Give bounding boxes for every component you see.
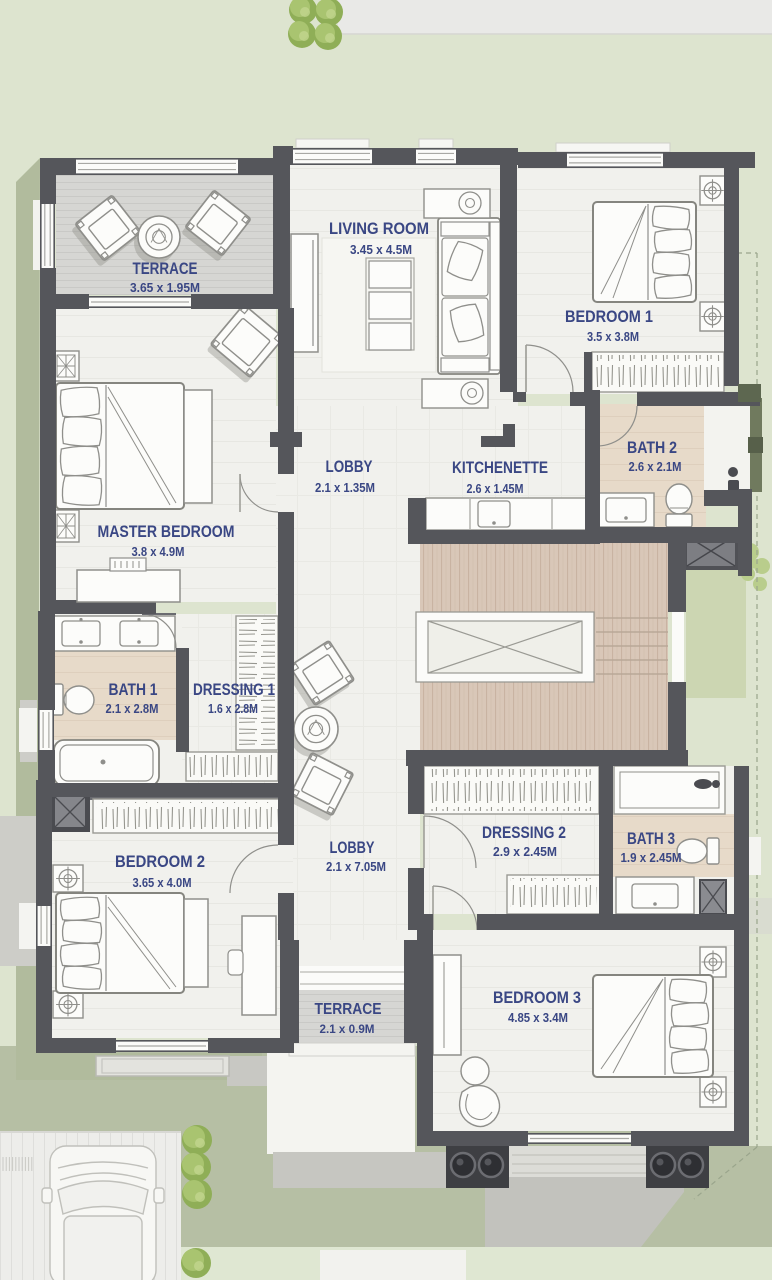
svg-text:BATH 3: BATH 3 — [627, 829, 675, 848]
svg-text:MASTER BEDROOM: MASTER BEDROOM — [98, 522, 235, 541]
svg-text:3.65 x 1.95M: 3.65 x 1.95M — [130, 281, 200, 295]
svg-text:2.1 x 0.9M: 2.1 x 0.9M — [320, 1022, 375, 1036]
svg-text:TERRACE: TERRACE — [133, 259, 198, 278]
svg-text:1.9 x 2.45M: 1.9 x 2.45M — [621, 851, 682, 865]
svg-text:2.1 x 7.05M: 2.1 x 7.05M — [326, 860, 386, 874]
svg-text:3.45 x 4.5M: 3.45 x 4.5M — [350, 243, 412, 257]
svg-text:1.6 x 2.8M: 1.6 x 2.8M — [208, 702, 258, 716]
svg-text:2.9 x 2.45M: 2.9 x 2.45M — [493, 845, 557, 859]
svg-text:BATH 2: BATH 2 — [627, 438, 677, 457]
svg-text:LOBBY: LOBBY — [326, 457, 374, 476]
svg-text:3.5 x 3.8M: 3.5 x 3.8M — [587, 330, 639, 344]
svg-text:BEDROOM 1: BEDROOM 1 — [565, 307, 653, 326]
svg-text:BEDROOM 3: BEDROOM 3 — [493, 988, 581, 1007]
svg-text:TERRACE: TERRACE — [315, 1001, 382, 1018]
svg-text:2.1 x 2.8M: 2.1 x 2.8M — [106, 702, 159, 716]
svg-text:DRESSING 2: DRESSING 2 — [482, 823, 566, 842]
svg-text:LIVING ROOM: LIVING ROOM — [329, 219, 429, 238]
svg-text:DRESSING 1: DRESSING 1 — [193, 680, 275, 699]
svg-text:2.1 x 1.35M: 2.1 x 1.35M — [315, 481, 375, 495]
svg-text:BATH 1: BATH 1 — [109, 680, 158, 699]
svg-text:BEDROOM 2: BEDROOM 2 — [115, 852, 205, 871]
svg-text:2.6 x 2.1M: 2.6 x 2.1M — [629, 460, 682, 474]
svg-text:2.6 x 1.45M: 2.6 x 1.45M — [467, 482, 524, 496]
svg-text:4.85 x 3.4M: 4.85 x 3.4M — [508, 1011, 568, 1025]
svg-text:LOBBY: LOBBY — [330, 838, 376, 857]
svg-text:3.8 x 4.9M: 3.8 x 4.9M — [132, 545, 185, 559]
svg-text:3.65 x 4.0M: 3.65 x 4.0M — [133, 876, 192, 890]
svg-text:KITCHENETTE: KITCHENETTE — [452, 458, 548, 477]
